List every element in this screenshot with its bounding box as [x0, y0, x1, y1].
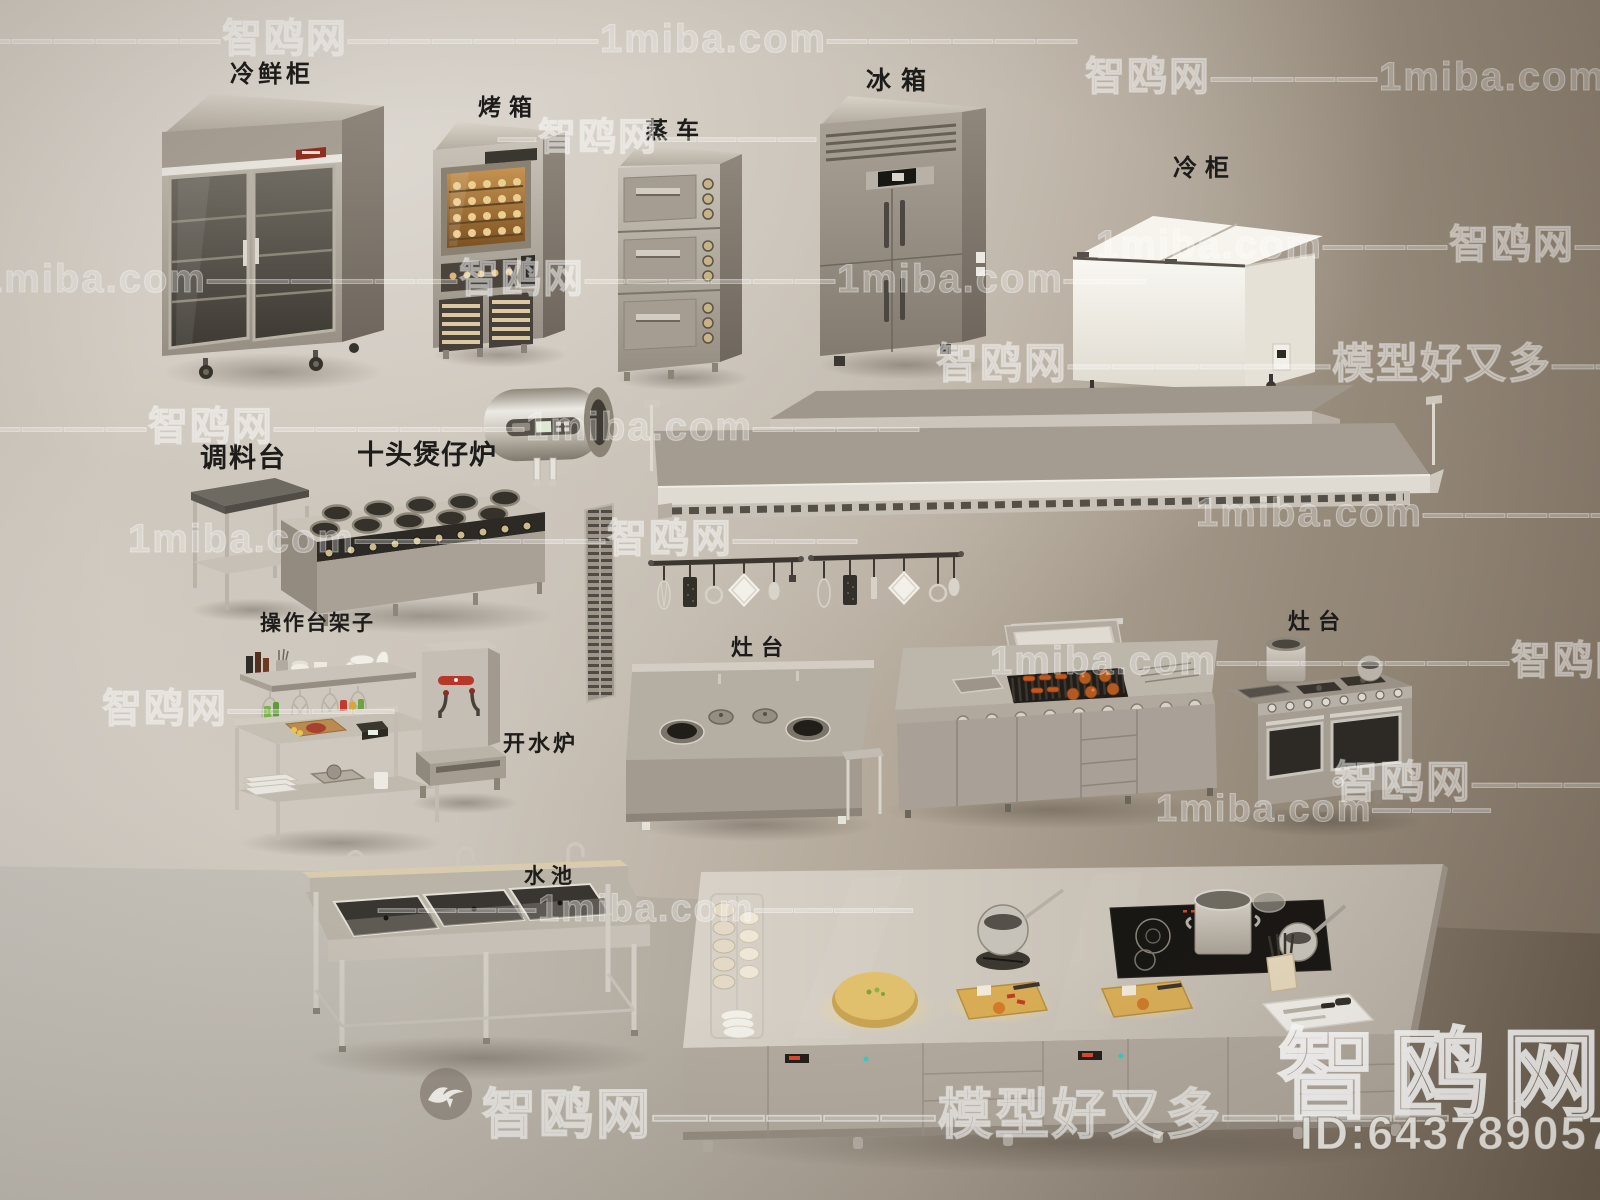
label-stove-left: 灶台	[731, 630, 791, 662]
label-fresh-cabinet: 冷鲜柜	[230, 54, 314, 89]
label-oven: 烤箱	[478, 88, 540, 122]
chest-freezer-model	[1065, 196, 1323, 406]
label-worktable-shelf: 操作台架子	[260, 607, 375, 637]
label-water-boiler: 开水炉	[503, 726, 578, 758]
ten-head-stove-model	[273, 486, 551, 626]
fresh-cabinet-model	[148, 80, 388, 385]
seagull-logo-icon	[420, 1068, 472, 1120]
side-table	[842, 748, 884, 820]
model-id: ID:643789057	[1300, 1106, 1600, 1160]
label-stove-right: 灶台	[1288, 604, 1348, 636]
watermark-row-top-right: 智鸥网————1miba.com————	[1085, 44, 1600, 102]
stock-pot	[1266, 637, 1306, 682]
range-model	[1220, 634, 1420, 830]
bbq-counter-model	[885, 618, 1230, 818]
label-ten-head-stove: 十头煲仔炉	[357, 433, 497, 472]
freezer-control	[1273, 344, 1290, 370]
scene: 冷鲜柜 烤箱 蒸车 冰箱 冷柜 调料台 十头煲仔炉 操作台架子 开水炉 灶台 灶…	[0, 0, 1600, 1200]
label-fridge: 冰箱	[866, 61, 936, 97]
label-freezer: 冷柜	[1173, 148, 1237, 183]
wok-stove-model	[624, 646, 884, 831]
steam-cart-model	[608, 136, 750, 382]
sink-model	[290, 840, 650, 1065]
oven-window	[441, 160, 531, 256]
water-heater-model	[480, 380, 620, 490]
heater-pipes	[533, 458, 557, 487]
label-sink: 水池	[524, 860, 578, 890]
round-cutting-board	[832, 972, 918, 1028]
water-boiler-model	[408, 636, 513, 811]
watermark-row-top: ——————智鸥网——————1miba.com——————	[0, 6, 1079, 64]
label-steam-cart: 蒸车	[645, 111, 707, 145]
steam-drawers	[624, 175, 696, 350]
fridge-model	[810, 84, 995, 369]
exhaust-hood-model	[638, 383, 1444, 528]
drain-grate-model	[581, 502, 619, 707]
baking-oven-model	[425, 108, 575, 360]
label-seasoning-table: 调料台	[200, 436, 287, 475]
